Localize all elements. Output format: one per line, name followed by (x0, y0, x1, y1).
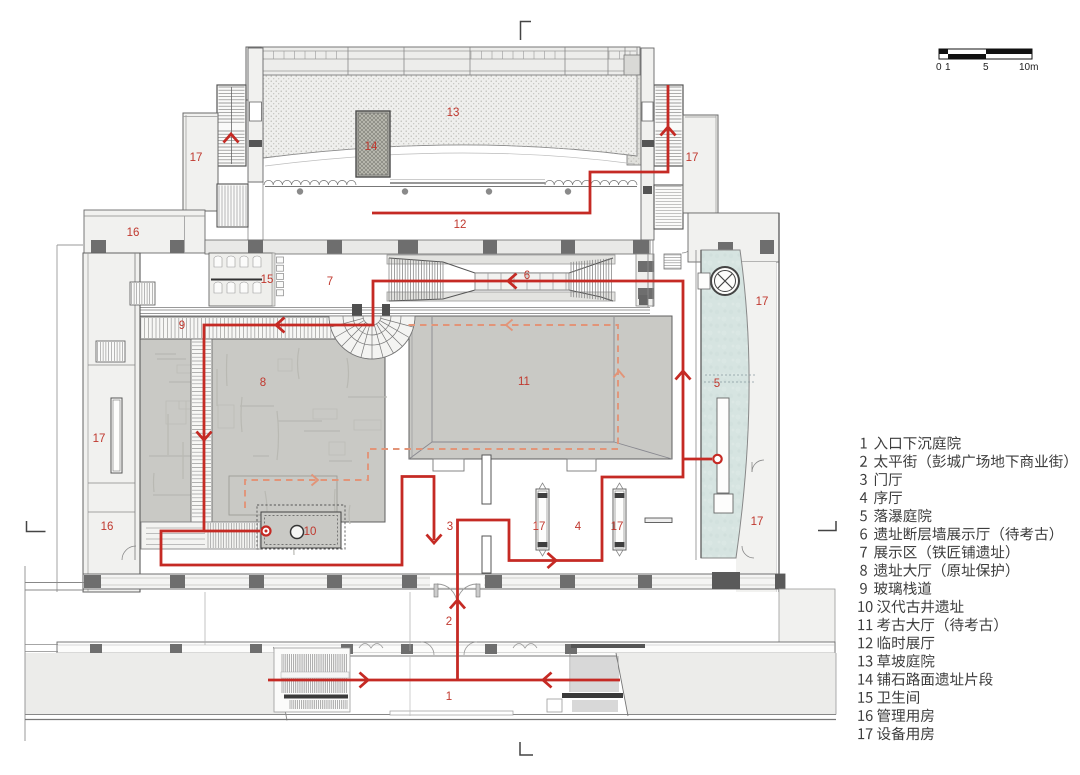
svg-text:9: 9 (179, 320, 185, 332)
svg-text:6: 6 (524, 270, 530, 282)
svg-text:16: 16 (127, 227, 140, 239)
svg-text:3: 3 (447, 521, 453, 533)
svg-text:14: 14 (365, 141, 378, 153)
svg-text:1: 1 (945, 62, 951, 73)
svg-text:17: 17 (686, 152, 699, 164)
svg-text:0: 0 (936, 62, 942, 73)
svg-text:5: 5 (714, 378, 720, 390)
svg-text:11: 11 (518, 376, 530, 388)
svg-text:2: 2 (446, 616, 452, 628)
svg-text:17: 17 (533, 521, 546, 533)
svg-text:17: 17 (190, 152, 203, 164)
svg-text:17: 17 (93, 433, 106, 445)
svg-text:16: 16 (101, 521, 114, 533)
svg-text:4: 4 (575, 521, 582, 533)
svg-text:15: 15 (261, 274, 274, 286)
svg-text:17: 17 (611, 521, 624, 533)
svg-text:17: 17 (751, 516, 764, 528)
svg-text:10: 10 (304, 526, 317, 538)
svg-text:7: 7 (327, 276, 333, 288)
svg-text:5: 5 (983, 62, 989, 73)
svg-text:17: 17 (756, 296, 769, 308)
svg-text:8: 8 (260, 377, 266, 389)
svg-text:1: 1 (446, 691, 452, 703)
svg-text:12: 12 (454, 219, 467, 231)
svg-text:13: 13 (447, 107, 460, 119)
svg-text:10m: 10m (1019, 62, 1038, 73)
